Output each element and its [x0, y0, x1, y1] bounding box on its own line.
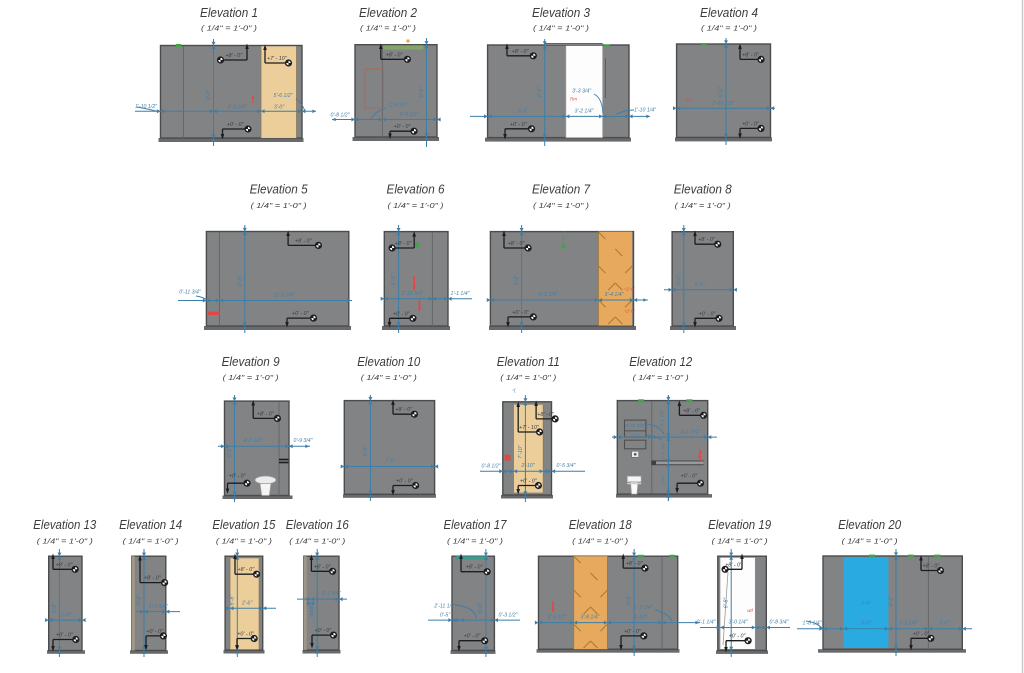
svg-text:0'-3 1/2": 0'-3 1/2" — [499, 613, 519, 619]
svg-text:( 1/4" = 1'-0" ): ( 1/4" = 1'-0" ) — [289, 537, 346, 546]
svg-text:2'-1 3/4": 2'-1 3/4" — [321, 591, 342, 597]
svg-text:2'-10": 2'-10" — [520, 463, 535, 469]
svg-text:+0' - 0": +0' - 0" — [510, 122, 528, 128]
svg-text:( 1/4" = 1'-0" ): ( 1/4" = 1'-0" ) — [388, 201, 445, 210]
svg-text:+0' - 0": +0' - 0" — [229, 474, 247, 480]
svg-text:+8' - 0": +8' - 0" — [725, 562, 743, 568]
svg-text:( 1/4" = 1'-0" ): ( 1/4" = 1'-0" ) — [360, 24, 417, 33]
svg-text:3'-2 1/4": 3'-2 1/4" — [575, 109, 595, 115]
svg-text:6'-8": 6'-8" — [137, 594, 143, 606]
svg-text:+0' - 0": +0' - 0" — [624, 629, 642, 635]
svg-text:+2'-6": +2'-6" — [624, 309, 635, 314]
svg-text:( 1/4" = 1'-0" ): ( 1/4" = 1'-0" ) — [123, 537, 180, 546]
svg-text:1'-1 1/4": 1'-1 1/4" — [451, 291, 471, 297]
svg-text:6'-8": 6'-8" — [391, 274, 397, 286]
svg-text:Elevation 8: Elevation 8 — [674, 182, 733, 197]
svg-text:+0' - 0": +0' - 0" — [699, 311, 717, 317]
svg-text:6'-8": 6'-8" — [419, 86, 425, 98]
svg-text:Elevation 4: Elevation 4 — [700, 5, 758, 20]
svg-text:+8' - 0": +8' - 0" — [923, 564, 941, 570]
svg-text:2'-6": 2'-6" — [241, 601, 253, 607]
svg-text:Rm: Rm — [685, 98, 692, 103]
svg-text:6'-8": 6'-8" — [724, 597, 730, 609]
svg-text:0'-9 3/4": 0'-9 3/4" — [294, 438, 314, 444]
svg-text:Elevation 15: Elevation 15 — [212, 517, 276, 532]
svg-text:3'-5 1/2": 3'-5 1/2" — [548, 615, 568, 621]
svg-text:+0' - 0": +0' - 0" — [315, 628, 333, 634]
svg-text:6'-8": 6'-8" — [889, 595, 895, 607]
svg-text:Elevation 19: Elevation 19 — [708, 517, 771, 532]
svg-text:( 1/4" = 1'-0" ): ( 1/4" = 1'-0" ) — [223, 373, 280, 382]
svg-text:1'-10 1/4": 1'-10 1/4" — [634, 108, 657, 114]
svg-text:6'-8": 6'-8" — [52, 602, 58, 614]
svg-text:Elevation 12: Elevation 12 — [629, 354, 693, 369]
svg-text:3'-0": 3'-0" — [274, 105, 285, 111]
svg-text:7'-6": 7'-6" — [385, 459, 396, 465]
svg-text:( 1/4" = 1'-0" ): ( 1/4" = 1'-0" ) — [500, 373, 557, 382]
svg-text:+0' - 0": +0' - 0" — [227, 122, 245, 128]
svg-text:Elevation 20: Elevation 20 — [838, 517, 902, 532]
svg-text:5'-1 7/8": 5'-1 7/8" — [660, 409, 666, 427]
svg-text:( 1/4" = 1'-0" ): ( 1/4" = 1'-0" ) — [37, 537, 94, 546]
svg-text:Elevation 10: Elevation 10 — [357, 354, 421, 369]
svg-text:3'-8 1/4": 3'-8 1/4" — [581, 615, 601, 621]
svg-text:0'-8 3/4": 0'-8 3/4" — [770, 620, 790, 626]
svg-text:+8' - 0": +8' - 0" — [683, 408, 701, 414]
svg-text:6'-8": 6'-8" — [676, 274, 682, 286]
svg-text:+8' - 0": +8' - 0" — [742, 52, 760, 58]
svg-text:1'-3 1/4": 1'-3 1/4" — [899, 621, 919, 627]
svg-text:Elevation 16: Elevation 16 — [286, 517, 350, 532]
svg-text:Elevation 3: Elevation 3 — [532, 5, 591, 20]
svg-text:+0' - 0": +0' - 0" — [56, 633, 74, 639]
svg-text:Elevation 7: Elevation 7 — [532, 182, 591, 197]
svg-text:Rm: Rm — [570, 97, 577, 102]
svg-text:+0' - 0": +0' - 0" — [742, 121, 760, 127]
svg-text:( 1/4" = 1'-0" ): ( 1/4" = 1'-0" ) — [633, 373, 690, 382]
svg-text:Elevation 6: Elevation 6 — [387, 182, 446, 197]
svg-text:+8' - 0": +8' - 0" — [508, 241, 526, 247]
svg-text:0'-5": 0'-5" — [440, 613, 451, 619]
svg-text:+0' - 0": +0' - 0" — [394, 124, 412, 130]
svg-text:1'-3 1/4": 1'-3 1/4" — [634, 605, 654, 611]
svg-text:5'-0": 5'-0" — [861, 621, 872, 627]
svg-text:0'-5 1/2": 0'-5 1/2" — [309, 600, 314, 617]
svg-text:wtf: wtf — [747, 608, 753, 613]
svg-text:( 1/4" = 1'-0" ): ( 1/4" = 1'-0" ) — [572, 537, 629, 546]
svg-text:7'-10 1/2": 7'-10 1/2" — [712, 101, 735, 107]
svg-text:3'-0 1/4": 3'-0 1/4" — [729, 620, 749, 626]
svg-text:( 1/4" = 1'-0" ): ( 1/4" = 1'-0" ) — [447, 537, 504, 546]
svg-text:0'-11 3/4": 0'-11 3/4" — [179, 290, 202, 296]
svg-text:Elevation 18: Elevation 18 — [569, 517, 633, 532]
svg-text:+8' - 0": +8' - 0" — [257, 411, 275, 417]
svg-text:2'-8": 2'-8" — [60, 613, 72, 619]
svg-text:6'-8": 6'-8" — [230, 594, 236, 606]
svg-text:+8' - 0": +8' - 0" — [238, 567, 256, 573]
svg-text:3'-4 1/4": 3'-4 1/4" — [605, 292, 625, 298]
svg-text:9'-2 1/4": 9'-2 1/4" — [539, 292, 559, 298]
svg-text:+7' - 10": +7' - 10" — [267, 56, 288, 62]
svg-text:+0' - 0": +0' - 0" — [520, 479, 538, 485]
svg-text:5'-5": 5'-5" — [518, 109, 529, 115]
svg-text:6'-8": 6'-8" — [537, 86, 543, 98]
svg-text:+8' - 0": +8' - 0" — [395, 407, 413, 413]
svg-text:3'-3 3/4": 3'-3 3/4" — [572, 89, 592, 95]
svg-text:+8' - 0": +8' - 0" — [395, 241, 413, 247]
svg-text:6'-8": 6'-8" — [237, 275, 243, 287]
svg-text:4'-3 1/4": 4'-3 1/4" — [228, 105, 248, 111]
svg-text:4'-7 1/2": 4'-7 1/2" — [244, 438, 264, 444]
svg-text:+8' - 0": +8' - 0" — [386, 52, 404, 58]
svg-text:2'-6": 2'-6" — [860, 601, 871, 607]
svg-text:6'-8": 6'-8" — [478, 602, 484, 614]
svg-text:+0' - 0": +0' - 0" — [913, 631, 931, 637]
svg-text:+8' - 0": +8' - 0" — [626, 561, 644, 567]
svg-text:0'-1 1/4": 0'-1 1/4" — [697, 620, 717, 626]
svg-text:6'-8": 6'-8" — [206, 89, 212, 101]
svg-text:6'-8": 6'-8" — [627, 594, 633, 606]
svg-text:+8' - 0": +8' - 0" — [295, 238, 313, 244]
svg-text:0'-5 3/4": 0'-5 3/4" — [557, 463, 577, 469]
svg-text:6'-8": 6'-8" — [514, 274, 520, 286]
svg-text:( 1/4" = 1'-0" ): ( 1/4" = 1'-0" ) — [533, 24, 590, 33]
svg-text:3'-1 3/4": 3'-1 3/4" — [681, 430, 701, 436]
svg-text:4'-10": 4'-10" — [633, 615, 647, 621]
svg-text:( 1/4" = 1'-0" ): ( 1/4" = 1'-0" ) — [251, 201, 308, 210]
svg-text:2'-7 3/4": 2'-7 3/4" — [148, 604, 169, 610]
svg-text:+0' - 0": +0' - 0" — [464, 634, 482, 640]
svg-text:6'-8": 6'-8" — [363, 445, 369, 457]
svg-text:5'-6 1/2": 5'-6 1/2" — [274, 93, 294, 99]
svg-text:+8' - 0": +8' - 0" — [698, 237, 716, 243]
svg-text:4'-8 1/2": 4'-8 1/2" — [400, 112, 420, 118]
svg-text:Elevation 13: Elevation 13 — [33, 517, 97, 532]
svg-text:0'-10 3/4": 0'-10 3/4" — [626, 423, 645, 428]
svg-text:+0' - 0": +0' - 0" — [292, 311, 310, 317]
svg-text:( 1/4" = 1'-0" ): ( 1/4" = 1'-0" ) — [675, 201, 732, 210]
svg-text:+8' - 0": +8' - 0" — [226, 53, 244, 59]
svg-text:+7' - 10": +7' - 10" — [519, 425, 540, 431]
svg-text:2'-11 1/2": 2'-11 1/2" — [433, 604, 457, 610]
svg-text:2'-6": 2'-6" — [661, 475, 667, 486]
svg-text:1'-10 3/4": 1'-10 3/4" — [401, 291, 424, 297]
svg-text:Elevation 17: Elevation 17 — [444, 517, 508, 532]
svg-text:( 1/4" = 1'-0" ): ( 1/4" = 1'-0" ) — [216, 537, 273, 546]
svg-text:( 1/4" = 1'-0" ): ( 1/4" = 1'-0" ) — [701, 24, 758, 33]
svg-text:+0' - 0": +0' - 0" — [393, 311, 411, 317]
svg-text:+0' - 0": +0' - 0" — [729, 634, 747, 640]
svg-text:+0' - 0": +0' - 0" — [396, 479, 414, 485]
svg-text:+8' - 0": +8' - 0" — [466, 565, 484, 571]
svg-text:( 1/4" = 1'-0" ): ( 1/4" = 1'-0" ) — [842, 537, 899, 546]
svg-text:( 1/4" = 1'-0" ): ( 1/4" = 1'-0" ) — [361, 373, 418, 382]
svg-text:+8' - 0": +8' - 0" — [537, 412, 555, 418]
svg-text:5'-5": 5'-5" — [695, 282, 706, 288]
svg-text:+8' - 0": +8' - 0" — [314, 564, 332, 570]
svg-text:Elevation 9: Elevation 9 — [222, 354, 280, 369]
svg-text:6'-8": 6'-8" — [719, 86, 725, 98]
svg-text:( 1/4" = 1'-0" ): ( 1/4" = 1'-0" ) — [533, 201, 590, 210]
svg-text:+0' - 0": +0' - 0" — [237, 632, 255, 638]
svg-text:Elevation 5: Elevation 5 — [250, 182, 309, 197]
svg-text:( 1/4" = 1'-0" ): ( 1/4" = 1'-0" ) — [201, 24, 258, 33]
svg-text:11'-2 3/4": 11'-2 3/4" — [273, 293, 296, 299]
svg-text:+8' - 0": +8' - 0" — [144, 576, 162, 582]
svg-text:3'-0": 3'-0" — [939, 621, 950, 627]
svg-text:+0' - 0": +0' - 0" — [681, 474, 699, 480]
svg-text:1'-8 1/2": 1'-8 1/2" — [389, 103, 409, 109]
svg-text:Elevation 1: Elevation 1 — [200, 5, 258, 20]
svg-text:+2'-6": +2'-6" — [624, 287, 635, 292]
svg-text:Elevation 11: Elevation 11 — [497, 354, 560, 369]
svg-text:Elevation 2: Elevation 2 — [359, 5, 418, 20]
svg-text:0'-8 1/2": 0'-8 1/2" — [482, 464, 502, 470]
svg-text:7'-10": 7'-10" — [518, 444, 524, 459]
svg-text:0'-8 1/2": 0'-8 1/2" — [331, 113, 351, 119]
svg-text:+0' - 0": +0' - 0" — [512, 310, 530, 316]
svg-text:+8' - 0": +8' - 0" — [512, 49, 530, 55]
svg-text:Elevation 14: Elevation 14 — [119, 517, 182, 532]
svg-text:+0' - 0": +0' - 0" — [146, 629, 164, 635]
svg-text:+8' - 0": +8' - 0" — [56, 562, 74, 568]
svg-text:0'-6 7/8": 0'-6 7/8" — [661, 442, 667, 460]
svg-text:( 1/4" = 1'-0" ): ( 1/4" = 1'-0" ) — [712, 537, 769, 546]
